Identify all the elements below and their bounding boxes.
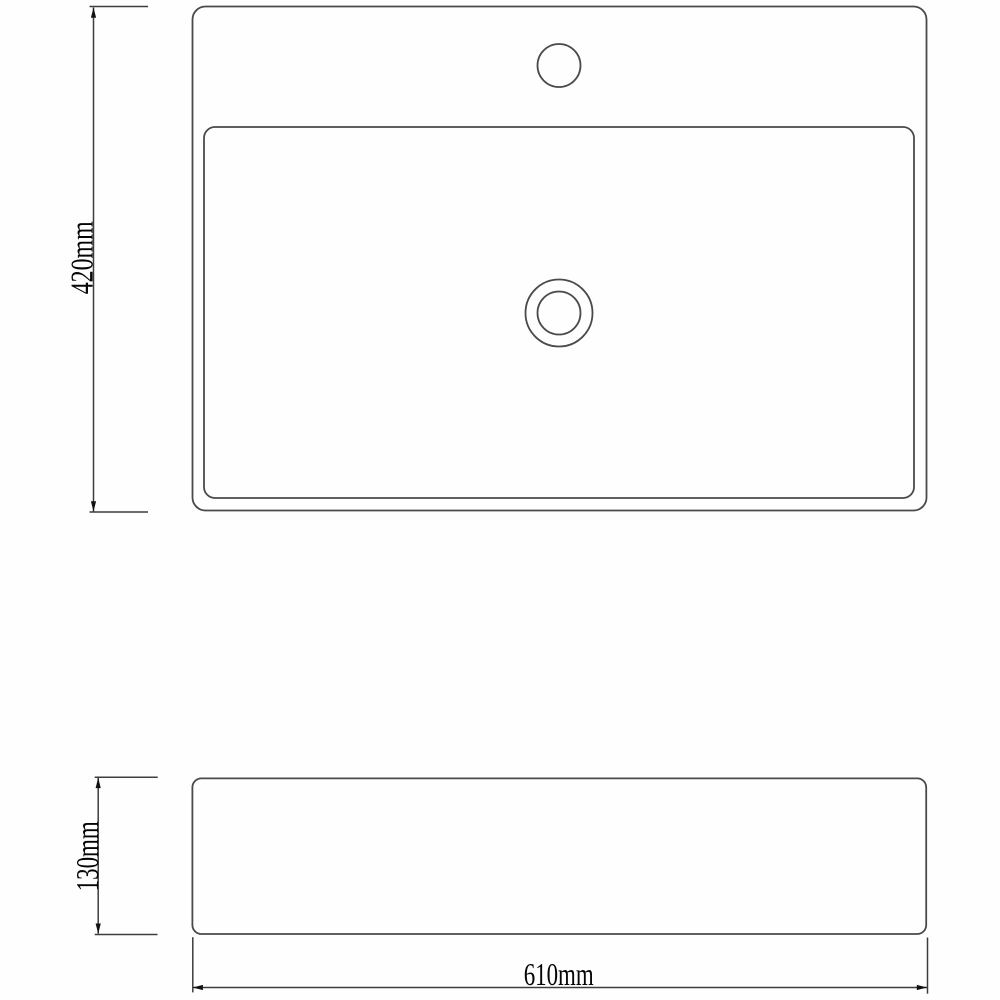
svg-text:130mm: 130mm <box>70 821 105 891</box>
svg-text:420mm: 420mm <box>64 221 99 294</box>
svg-text:610mm: 610mm <box>524 957 594 992</box>
